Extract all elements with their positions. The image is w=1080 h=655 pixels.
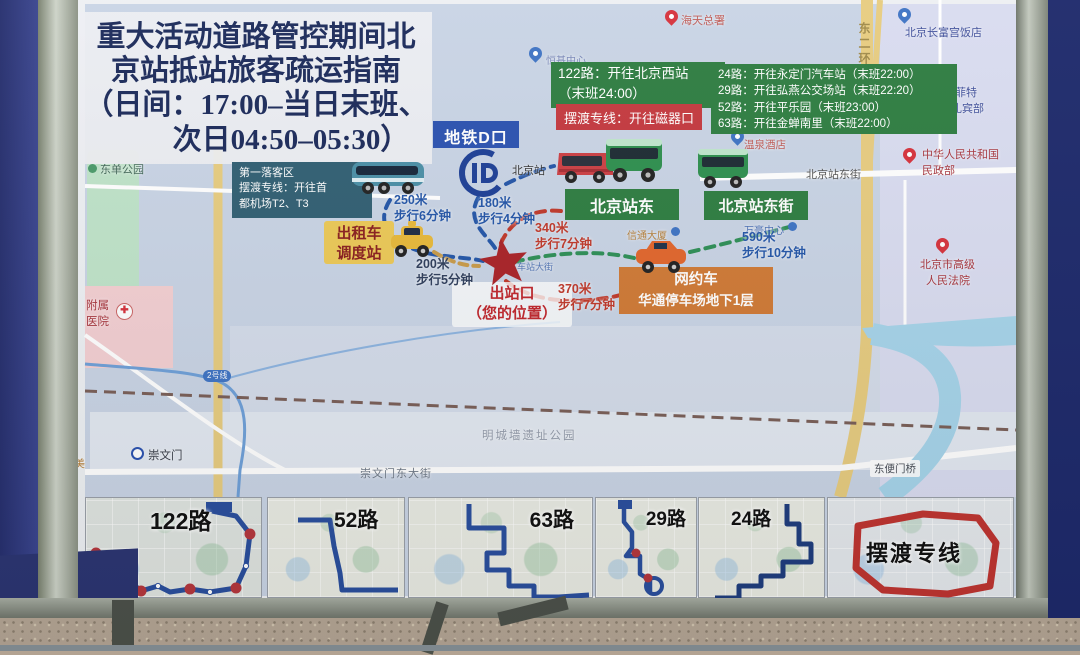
thumbnail-route-52: 52路 [267,497,405,598]
bus-122-info-box: 122路：开往北京西站 （末班24:00） [551,62,725,108]
map-label-court-1: 北京市高级 [920,256,975,272]
ride-hail-line2: 华通停车场地下1层 [619,291,773,311]
taxi-icon [389,220,435,262]
title-line-1: 重大活动道路管控期间北 [80,20,432,54]
thumbnail-route-29: 29路 [595,497,697,598]
title-line-3: （日间：17:00–当日末班、 [80,88,432,122]
map-label-haitian: 海天总署 [681,12,725,28]
bus-24-line: 24路：开往永定门汽车站（末班22:00） [718,67,950,83]
station-east-street-box: 北京站东街 [704,191,808,220]
distance-340: 340米步行7分钟 [535,221,592,252]
adjacent-blue-board-left [0,0,38,620]
thumbnail-route-24: 24路 [698,497,825,598]
distance-590: 590米步行10分钟 [742,230,806,261]
bus-list-info-box: 24路：开往永定门汽车站（末班22:00） 29路：开往弘燕公交场站（末班22:… [711,64,957,134]
map-label-dongbianmen: 东便门桥 [870,460,920,477]
line2-badge: 2号线 [203,370,231,382]
xintong-badge-icon [671,227,680,236]
metro-entrance-box: 地铁D口 [433,121,519,148]
railway-line [85,391,1016,430]
thumbnail-label-52: 52路 [334,504,378,534]
map-label-changfugong: 北京长富宫饭店 [905,24,982,40]
board-frame-left [38,0,78,622]
map-label-fushu-1: 附属 [86,297,109,313]
map-label-dongerhuan: 东二环 [856,22,873,67]
hospital-cross-icon: ✚ [116,303,133,320]
board-title: 重大活动道路管控期间北 京站抵站旅客疏运指南 （日间：17:00–当日末班、 次… [80,12,432,164]
taxi-stand-line1: 出租车 [324,224,394,244]
dropoff-line1: 第一落客区 [239,166,365,181]
distance-370: 370米步行7分钟 [558,282,615,313]
board-leg-left [112,600,134,648]
bus-122-line2: （末班24:00） [558,84,718,104]
title-line-4: 次日04:50–05:30） [80,123,432,157]
bus-52-line: 52路：开往平乐园（末班23:00） [718,100,950,116]
map-label-street-road: 北京站东街 [806,166,861,182]
exit-star-icon [477,235,531,289]
ferry-info-box: 摆渡专线：开往磁器口 [556,104,702,130]
exit-line2: （您的位置） [452,304,572,324]
bus-29-line: 29路：开往弘燕公交场站（末班22:20） [718,83,950,99]
thumbnail-label-122: 122路 [150,502,211,536]
map-label-ming-wall-park: 明城墙遗址公园 [482,427,577,443]
bus-63-line: 63路：开往金蝉南里（末班22:00） [718,116,950,132]
taxi-stand-box: 出租车 调度站 [324,221,394,264]
metro-station-icon [131,447,144,460]
thumbnail-label-24: 24路 [731,504,771,531]
thumbnail-label-ferry: 摆渡专线 [866,536,962,568]
station-east-box: 北京站东 [565,189,679,220]
taxi-stand-line2: 调度站 [324,244,394,264]
map-label-minzheng-1: 中华人民共和国 [922,146,999,162]
thumbnail-label-63: 63路 [530,504,574,534]
map-label-chongwenmen: 崇文门 [148,447,183,463]
bus-station-east-icon [602,131,666,189]
map-pin-dongdan-park [88,164,97,173]
thumbnail-route-63: 63路 [408,497,593,598]
title-line-2: 京站抵站旅客疏运指南 [80,54,432,88]
adjacent-blue-board-right [1048,0,1080,651]
ride-hail-car-icon [632,236,690,278]
map-label-minzheng-2: 民政部 [922,162,955,178]
pavement-edge [0,645,1080,651]
thumbnail-route-ferry: 摆渡专线 [827,497,1014,598]
road-minor-2 [85,335,285,470]
beijing-subway-logo [456,146,510,200]
bus-122-line1: 122路：开往北京西站 [558,64,718,84]
map-label-court-2: 人民法院 [926,272,970,288]
board-frame-right [1016,0,1048,651]
airport-shuttle-bus-icon [350,156,428,198]
map-label-beijing-station: 北京站 [512,162,545,178]
bus-station-east-street-icon [694,142,752,194]
dropoff-line2: 摆渡专线：开往首 [239,181,365,196]
map-label-chongwenmen-east: 崇文门东大街 [360,465,432,481]
photo-of-information-board: 恒基中心 海天总署 东二环 北京长富宫饭店 索菲特 店礼宾部 中华人民共和国 民… [0,0,1080,651]
thumbnail-label-29: 29路 [646,504,686,531]
map-label-fushu-2: 医院 [86,313,109,329]
dropoff-line3: 都机场T2、T3 [239,197,365,212]
metro-line-2-east [218,322,560,381]
distance-180: 180米步行4分钟 [478,196,535,227]
